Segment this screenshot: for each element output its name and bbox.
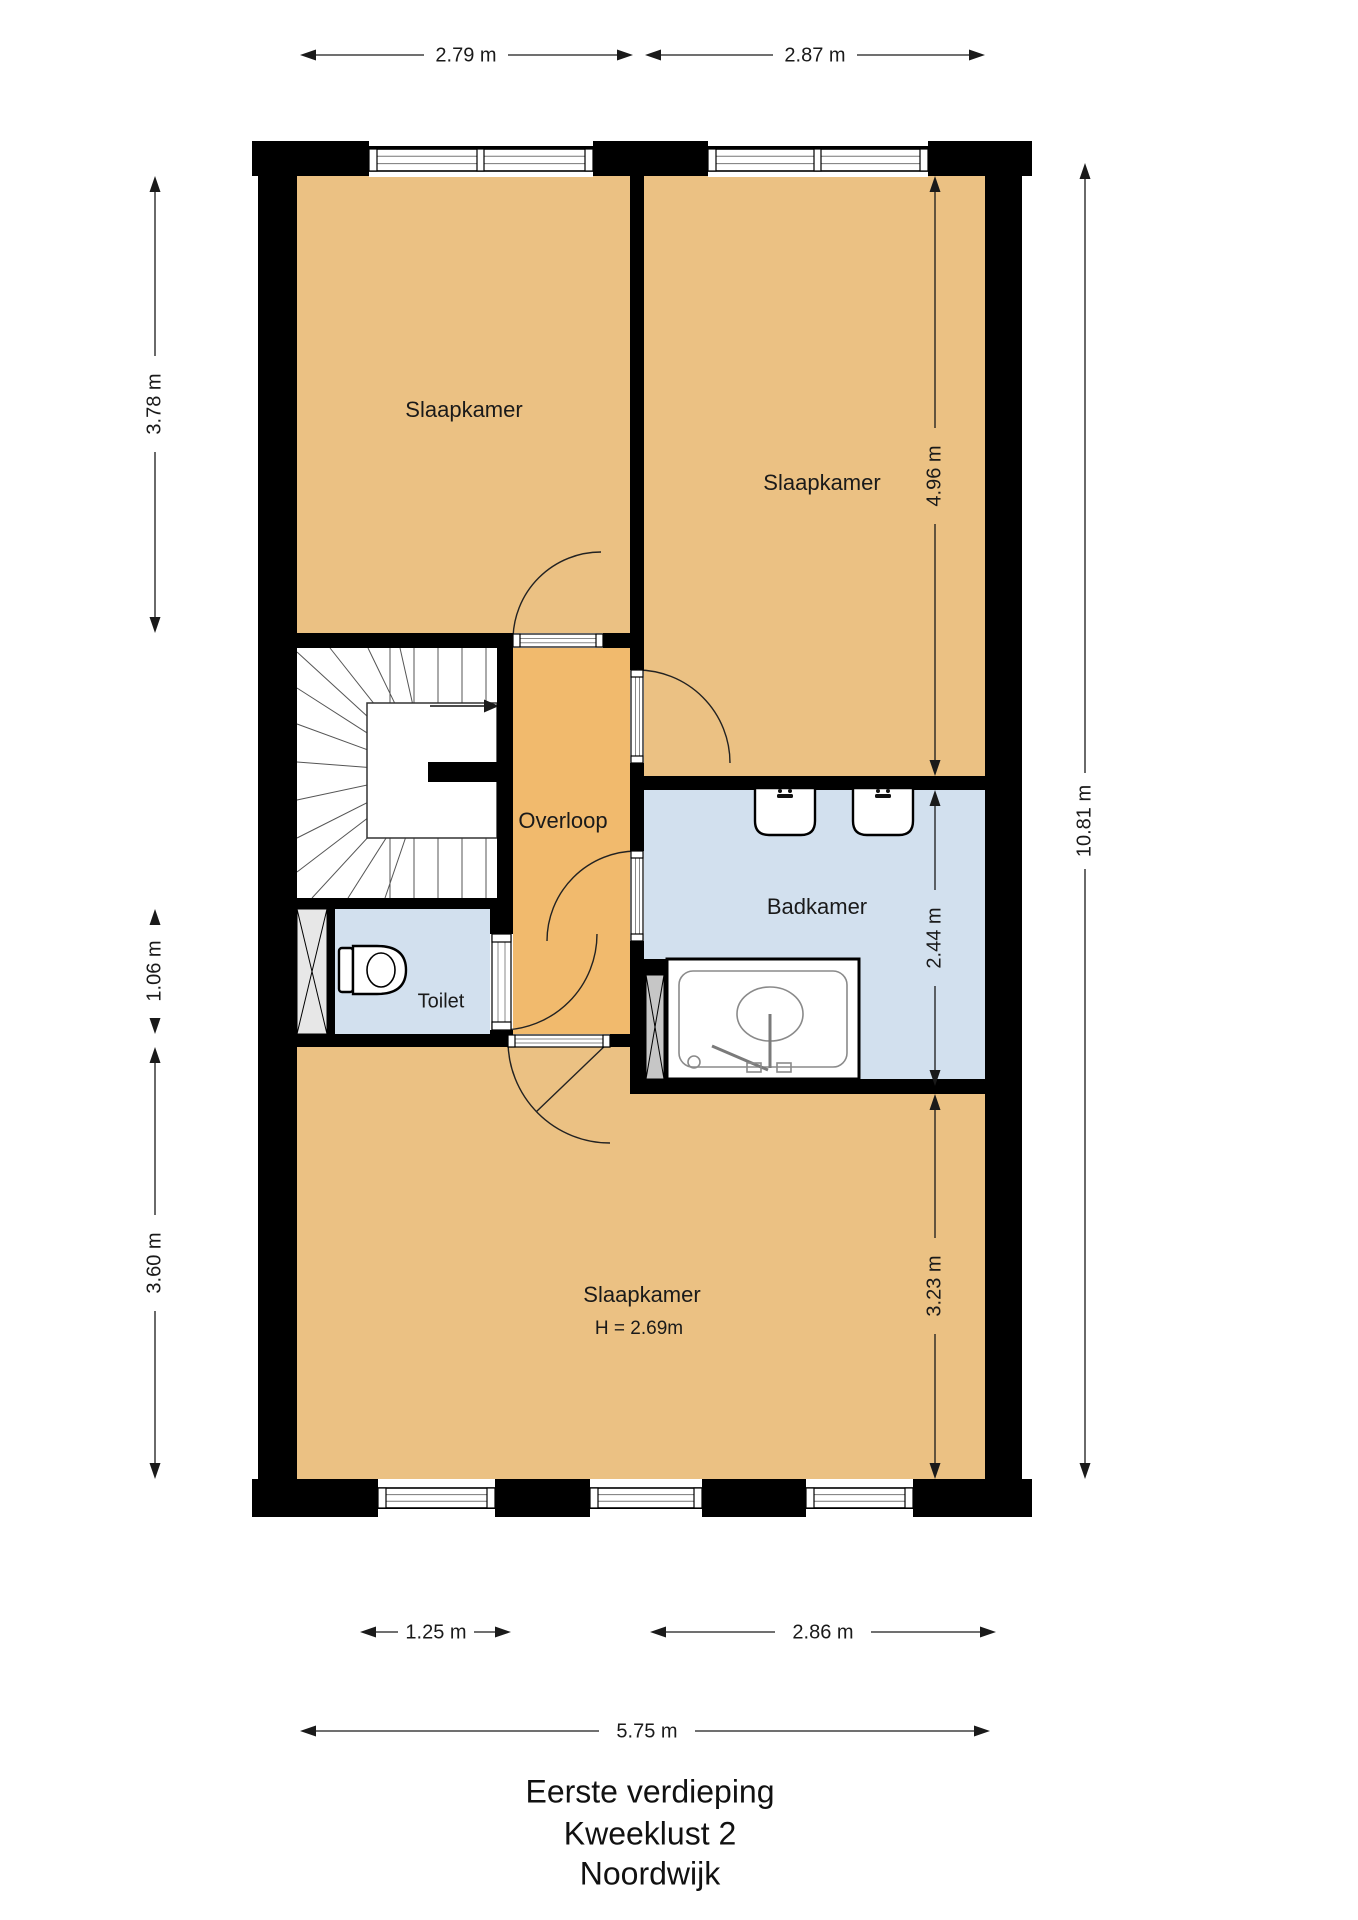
svg-text:10.81 m: 10.81 m [1073,785,1095,857]
room-label-bedroom-top-right: Slaapkamer [763,470,880,495]
dim-top-right: 2.87 m [645,44,985,66]
wall-partition-top [630,176,644,670]
svg-text:2.44 m: 2.44 m [923,907,945,968]
wall-toilet-bottom [258,1034,508,1047]
svg-text:3.78 m: 3.78 m [143,373,165,434]
shower-icon [667,959,859,1079]
room-label-bedroom-bottom: Slaapkamer [583,1282,700,1307]
svg-text:2.87 m: 2.87 m [784,44,845,66]
title-block: Eerste verdieping Kweeklust 2 Noordwijk [525,1773,774,1891]
stair-landing-wall [428,762,497,782]
svg-text:5.75 m: 5.75 m [616,1720,677,1742]
wc-icon [339,946,406,994]
dim-left-upper: 3.78 m [143,176,165,633]
dim-top-left: 2.79 m [300,44,633,66]
wall-right [985,146,1022,1509]
dim-total-width: 5.75 m [300,1720,990,1742]
wall-toilet-top [293,898,513,909]
window-top-left [369,149,593,177]
room-label-landing: Overloop [518,808,607,833]
svg-text:1.25 m: 1.25 m [405,1621,466,1643]
room-label-bathroom: Badkamer [767,894,867,919]
room-label-bedroom-top-left: Slaapkamer [405,397,522,422]
window-top-right [708,149,928,177]
dim-bottom-window: 1.25 m [360,1621,511,1643]
svg-text:3.60 m: 3.60 m [143,1232,165,1293]
floorplan-page: Slaapkamer Slaapkamer Overloop Badkamer … [0,0,1358,1920]
bedroom-bottom-floor-left [297,1047,630,1479]
window-bottom-right [806,1479,913,1508]
dim-left-toilet: 1.06 m [143,909,165,1034]
window-bottom-left [378,1479,495,1508]
wall-stairs-right [497,648,513,909]
svg-text:3.23 m: 3.23 m [923,1255,945,1316]
sink-icon-right [853,788,913,835]
duct-x-icon-toilet [297,909,327,1034]
page-subtitle-city: Noordwijk [580,1855,721,1891]
room-label-toilet: Toilet [418,990,465,1012]
wall-bedroom1-bottom [297,633,513,648]
svg-text:1.06 m: 1.06 m [143,940,165,1001]
dim-left-lower: 3.60 m [143,1047,165,1479]
floorplan-canvas: Slaapkamer Slaapkamer Overloop Badkamer … [0,0,1358,1920]
room-label-bedroom-bottom-height: H = 2.69m [595,1318,683,1339]
landing-floor [513,648,630,1034]
window-bottom-middle [590,1479,702,1508]
page-subtitle-address: Kweeklust 2 [564,1815,737,1851]
svg-text:2.86 m: 2.86 m [792,1621,853,1643]
dim-bottom-right: 2.86 m [650,1621,996,1643]
wall-left [258,146,297,1509]
svg-text:2.79 m: 2.79 m [435,44,496,66]
svg-text:4.96 m: 4.96 m [923,445,945,506]
dim-total-height: 10.81 m [1073,163,1095,1479]
sink-icon-left [755,788,815,835]
page-title: Eerste verdieping [525,1773,774,1809]
duct-x-icon-shower-overlay [646,975,664,1079]
